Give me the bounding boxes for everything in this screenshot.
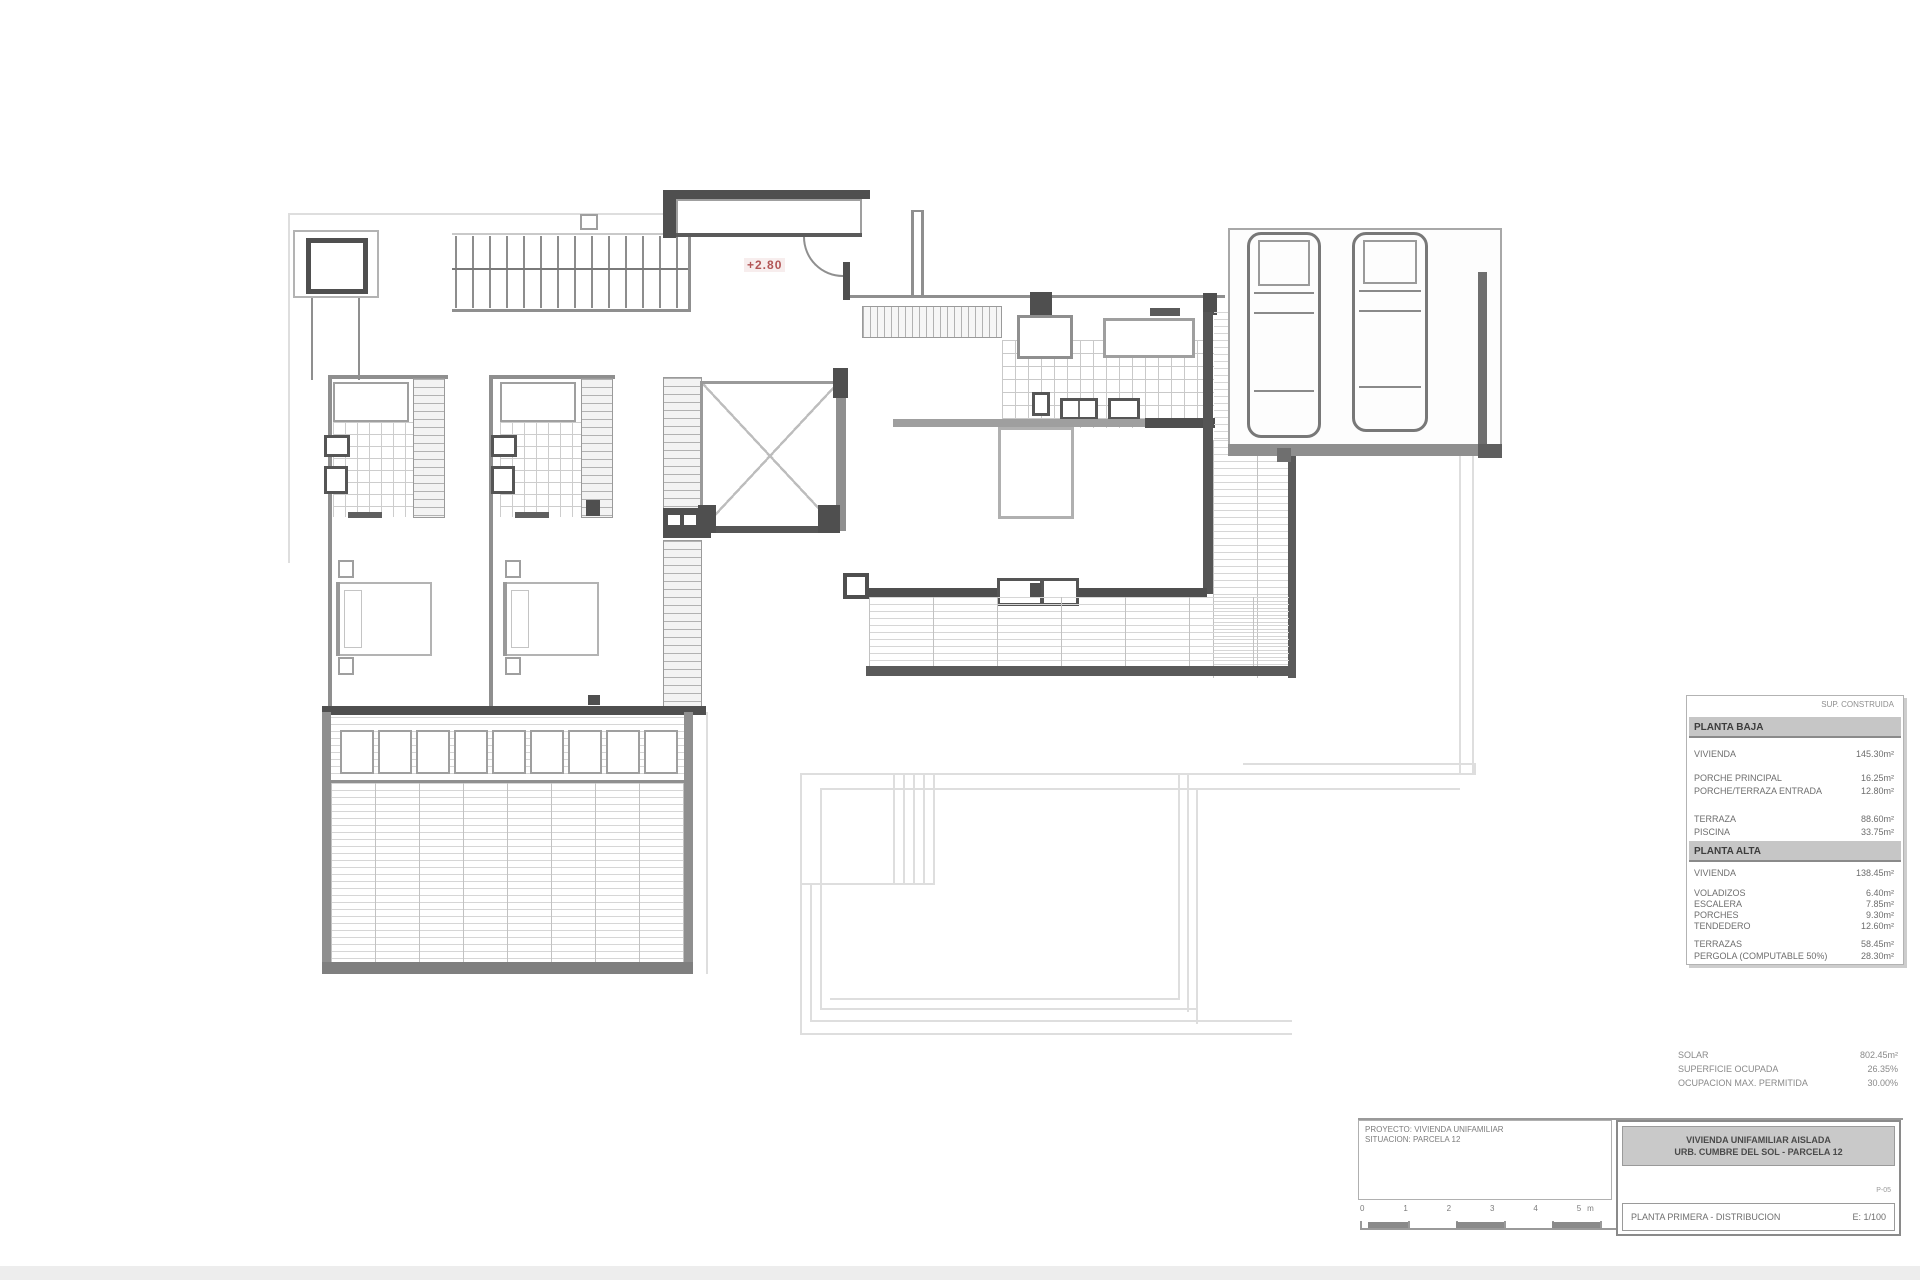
- row-value: 138.45m²: [1856, 868, 1894, 879]
- bath1-threshold: [348, 512, 382, 518]
- kitchen-hob-divider: [1078, 401, 1080, 417]
- bath1-toilet: [324, 435, 350, 457]
- sheet-scale: E: 1/100: [1852, 1212, 1886, 1222]
- project-info-cell: PROYECTO: VIVIENDA UNIFAMILIAR SITUACION…: [1358, 1120, 1612, 1200]
- row-value: 12.80m²: [1861, 786, 1894, 797]
- sheet-info-cell: VIVIENDA UNIFAMILIAR AISLADA URB. CUMBRE…: [1616, 1120, 1901, 1236]
- project-line1: PROYECTO: VIVIENDA UNIFAMILIAR: [1365, 1125, 1504, 1135]
- site-line: [1472, 456, 1474, 773]
- pool-step-line: [893, 773, 895, 885]
- entrance-wall: [663, 190, 870, 199]
- column: [1030, 292, 1052, 316]
- shaft-notch: [684, 515, 696, 525]
- corridor-wall: [358, 298, 360, 380]
- pool-terrace-line: [810, 1020, 1292, 1022]
- pantry-shelving: [862, 306, 1002, 338]
- kitchen-island: [1017, 315, 1073, 359]
- stair-edge: [452, 233, 690, 235]
- row-label: TERRAZA: [1694, 814, 1736, 825]
- pool-terrace-line: [1178, 773, 1180, 1000]
- patio-wall: [911, 210, 924, 212]
- bath1-vanity: [333, 382, 409, 422]
- shaft-wall: [833, 368, 848, 398]
- row-label: VIVIENDA: [1694, 749, 1736, 760]
- sheet-title-row: PLANTA PRIMERA - DISTRIBUCION E: 1/100: [1622, 1203, 1895, 1231]
- row-label: PORCHE PRINCIPAL: [1694, 773, 1782, 784]
- row-value: 88.60m²: [1861, 814, 1894, 825]
- pool-terrace-line: [1196, 788, 1198, 1024]
- entrance-wall: [843, 262, 850, 300]
- terrace-parapet: [1288, 455, 1296, 678]
- row-value: 6.40m²: [1866, 888, 1894, 899]
- page-edge: [0, 1266, 1920, 1280]
- pool-step-line: [800, 883, 935, 885]
- bed1-nightstand: [338, 657, 354, 675]
- row-label: TERRAZAS: [1694, 939, 1742, 950]
- summary-label: OCUPACION MAX. PERMITIDA: [1678, 1078, 1808, 1089]
- bed1-headboard: [336, 582, 340, 656]
- pergola-beam: [568, 730, 602, 774]
- sheet-title: PLANTA PRIMERA - DISTRIBUCION: [1631, 1212, 1780, 1222]
- kitchen-counter: [1103, 318, 1195, 358]
- summary-value: 26.35%: [1867, 1064, 1898, 1075]
- kitchen-appliance: [1108, 398, 1140, 420]
- level-stamp: +2.80: [744, 258, 785, 272]
- bath2-fixture: [586, 500, 600, 516]
- pool-terrace-line: [800, 773, 1476, 775]
- pool-step-line: [903, 773, 905, 885]
- pergola-beam: [340, 730, 374, 774]
- car-2-hood: [1363, 240, 1417, 284]
- bedroom1-west-wall: [328, 375, 332, 713]
- column: [843, 573, 869, 599]
- bath2-toilet: [491, 435, 517, 457]
- car-1-rear-window: [1254, 390, 1314, 392]
- pool-terrace-line: [800, 1033, 1292, 1035]
- bath2-shower-column: [581, 378, 613, 518]
- site-boundary-line: [288, 213, 290, 563]
- table-section-header: PLANTA BAJA: [1689, 717, 1901, 738]
- car-1-roof-line: [1254, 312, 1314, 314]
- summary-value: 802.45m²: [1860, 1050, 1898, 1061]
- shaft-corner: [698, 505, 716, 533]
- row-label: PORCHE/TERRAZA ENTRADA: [1694, 786, 1822, 797]
- wall-stub: [588, 695, 600, 705]
- summary-label: SOLAR: [1678, 1050, 1709, 1061]
- chimney-shaft: [306, 238, 368, 294]
- kitchen-sink: [1032, 392, 1050, 416]
- stair-post: [580, 214, 598, 230]
- garage-pier: [1478, 444, 1502, 458]
- summary-label: SUPERFICIE OCUPADA: [1678, 1064, 1778, 1075]
- bed2-pillow: [511, 590, 529, 648]
- terrace-deck-south: [869, 597, 1289, 667]
- pool-step-line: [913, 773, 915, 885]
- pergola-beam: [454, 730, 488, 774]
- bath2-threshold: [515, 512, 549, 518]
- entrance-canopy: [676, 199, 862, 237]
- car-2-windshield: [1359, 290, 1421, 292]
- bed1-pillow: [344, 590, 362, 648]
- pool-terrace-line: [830, 998, 1180, 1000]
- pergola-beam: [644, 730, 678, 774]
- scale-labels: 0 1 2 3 4 5m: [1360, 1204, 1600, 1214]
- row-label: PERGOLA (COMPUTABLE 50%): [1694, 951, 1827, 962]
- bedroom-south-wall: [322, 706, 706, 715]
- row-label: VOLADIZOS: [1694, 888, 1746, 899]
- shaft-wall-hatch: [663, 377, 702, 515]
- row-label: ESCALERA: [1694, 899, 1742, 910]
- patio-wall: [921, 210, 924, 297]
- staircase-treads: [455, 236, 687, 308]
- bed2-nightstand: [505, 657, 521, 675]
- living-room-east-wall: [1203, 312, 1213, 594]
- firm-line1: VIVIENDA UNIFAMILIAR AISLADA: [1623, 1134, 1894, 1146]
- row-value: 7.85m²: [1866, 899, 1894, 910]
- pool-terrace-line: [820, 788, 1460, 790]
- site-boundary-line: [288, 213, 665, 215]
- row-label: PISCINA: [1694, 827, 1730, 838]
- terrace-wall-east: [684, 712, 693, 974]
- terrace-wall-south: [322, 962, 693, 974]
- car-1-hood: [1258, 240, 1310, 286]
- living-south-wall: [869, 588, 999, 597]
- garage-east-wall: [1478, 272, 1487, 450]
- summary-value: 30.00%: [1867, 1078, 1898, 1089]
- pool-terrace-line: [1187, 773, 1189, 1012]
- pool-terrace-line: [820, 1008, 1198, 1010]
- row-value: 58.45m²: [1861, 939, 1894, 950]
- bedroom-partition-wall: [489, 375, 493, 713]
- row-value: 9.30m²: [1866, 910, 1894, 921]
- terrace-parapet: [866, 666, 1296, 676]
- bed2-nightstand: [505, 560, 521, 578]
- pergola-beam: [416, 730, 450, 774]
- terrace-wall-west: [322, 712, 331, 974]
- row-value: 33.75m²: [1861, 827, 1894, 838]
- shaft-wall-hatch: [663, 540, 702, 710]
- row-value: 145.30m²: [1856, 749, 1894, 760]
- bath2-bidet: [491, 466, 515, 494]
- terrace-decking: [331, 783, 684, 962]
- row-value: 16.25m²: [1861, 773, 1894, 784]
- pergola-beam: [530, 730, 564, 774]
- site-line: [1459, 456, 1461, 773]
- stair-edge: [452, 309, 690, 312]
- kitchen-low-wall: [893, 419, 1148, 427]
- bed2-headboard: [503, 582, 507, 656]
- car-2-rear-window: [1359, 386, 1421, 388]
- pool-terrace-line: [820, 788, 822, 1010]
- corridor-wall: [311, 298, 313, 380]
- pergola-beam: [492, 730, 526, 774]
- patio-wall: [911, 210, 914, 297]
- pergola-beam: [378, 730, 412, 774]
- row-value: 28.30m²: [1861, 951, 1894, 962]
- entrance-wall: [663, 190, 676, 238]
- bath1-bidet: [324, 466, 348, 494]
- living-south-wall: [1077, 588, 1207, 597]
- sheet-header: VIVIENDA UNIFAMILIAR AISLADA URB. CUMBRE…: [1622, 1126, 1895, 1166]
- row-label: PORCHES: [1694, 910, 1739, 921]
- pool-terrace-line: [1243, 763, 1476, 765]
- shaft-wall: [712, 526, 832, 533]
- project-line2: SITUACION: PARCELA 12: [1365, 1135, 1460, 1145]
- row-value: 12.60m²: [1861, 921, 1894, 932]
- table-section-header: PLANTA ALTA: [1689, 841, 1901, 862]
- garage-pier: [1277, 448, 1291, 462]
- plot-summary: SOLAR802.45m² SUPERFICIE OCUPADA26.35% O…: [1678, 1050, 1898, 1098]
- shaft-corner: [818, 505, 840, 533]
- pool-step-line: [923, 773, 925, 885]
- garage-south-wall: [1228, 444, 1502, 456]
- pool-terrace-line: [810, 885, 812, 1022]
- title-block: PROYECTO: VIVIENDA UNIFAMILIAR SITUACION…: [1358, 1118, 1903, 1237]
- row-label: VIVIENDA: [1694, 868, 1736, 879]
- pool-terrace-line: [1474, 763, 1476, 775]
- car-2-roof-line: [1359, 310, 1421, 312]
- table-note: SUP. CONSTRUIDA: [1821, 700, 1894, 709]
- shaft-notch: [668, 515, 680, 525]
- area-table: SUP. CONSTRUIDA PLANTA BAJA VIVIENDA145.…: [1686, 695, 1904, 965]
- stair-edge: [688, 233, 691, 312]
- stair-handrail: [452, 268, 690, 270]
- car-1-windshield: [1254, 292, 1314, 294]
- pool-step-line: [933, 773, 935, 885]
- firm-line2: URB. CUMBRE DEL SOL - PARCELA 12: [1623, 1146, 1894, 1158]
- dining-table: [998, 427, 1074, 519]
- pergola-beam: [606, 730, 640, 774]
- bath2-vanity: [500, 382, 576, 422]
- bed1-nightstand: [338, 560, 354, 578]
- column: [1150, 308, 1180, 316]
- bath1-shower-column: [413, 378, 445, 518]
- floor-plan-sheet: +2.80: [0, 0, 1920, 1280]
- sheet-number: P-05: [1876, 1186, 1891, 1196]
- door-swing-arc: [803, 237, 843, 277]
- pool-terrace-line: [800, 773, 802, 1035]
- row-label: TENDEDERO: [1694, 921, 1751, 932]
- site-line: [706, 712, 708, 974]
